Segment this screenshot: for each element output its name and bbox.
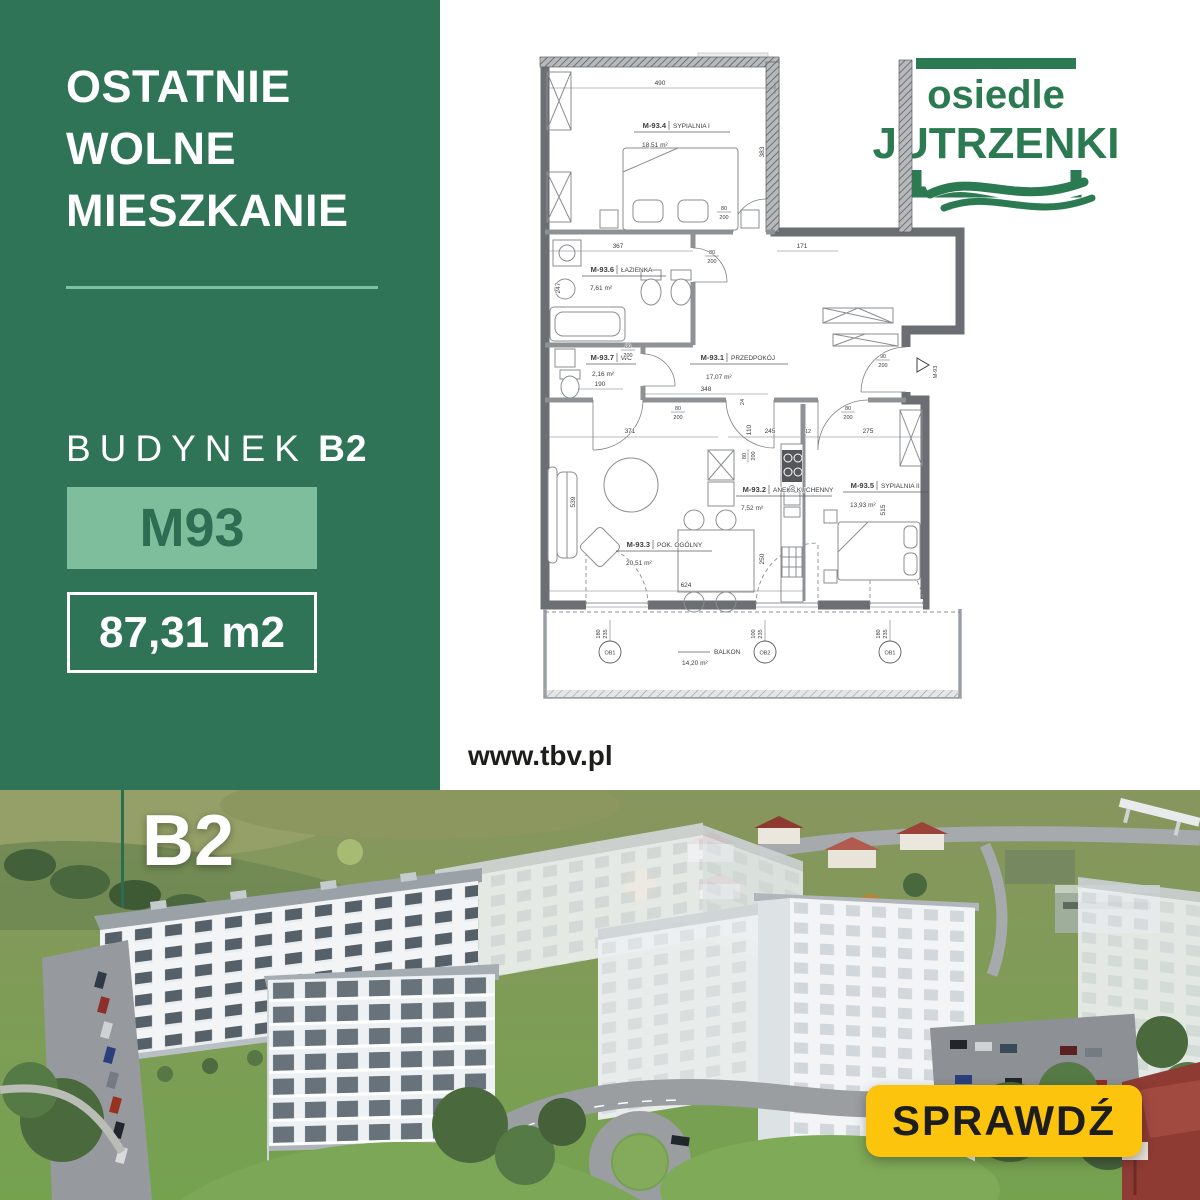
- svg-text:171: 171: [797, 243, 808, 250]
- svg-text:245: 245: [765, 428, 776, 435]
- unit-badge: M93: [67, 487, 317, 569]
- svg-text:100: 100: [751, 629, 757, 638]
- building-value: B2: [318, 428, 367, 469]
- svg-text:M-93.3: M-93.3: [627, 540, 650, 549]
- wardrobe-hatch: [547, 72, 571, 222]
- door-label-bed2: 80 200: [841, 406, 855, 421]
- svg-text:200: 200: [751, 451, 757, 460]
- b2-pointer-line: [121, 790, 124, 908]
- svg-text:7,52 m²: 7,52 m²: [741, 505, 764, 512]
- svg-text:80: 80: [742, 453, 748, 459]
- svg-text:13,93 m²: 13,93 m²: [850, 502, 876, 509]
- svg-text:190: 190: [595, 381, 606, 388]
- photo-building-label: B2: [142, 800, 234, 882]
- svg-text:PRZEDPOKÓJ: PRZEDPOKÓJ: [731, 353, 775, 362]
- svg-text:M-93.1: M-93.1: [701, 353, 724, 362]
- website-url: www.tbv.pl: [468, 740, 613, 772]
- door-label-kitchen: 80 200: [742, 449, 757, 463]
- svg-text:M-93.5: M-93.5: [851, 481, 874, 490]
- svg-text:180: 180: [876, 629, 882, 638]
- svg-text:17,07 m²: 17,07 m²: [706, 374, 732, 381]
- svg-text:80: 80: [845, 406, 851, 412]
- room-label-przedpokoj: M-93.1 PRZEDPOKÓJ 17,07 m²: [690, 353, 788, 381]
- area-badge: 87,31 m2: [67, 592, 317, 673]
- svg-text:80: 80: [709, 250, 715, 256]
- svg-text:235: 235: [603, 629, 609, 638]
- svg-text:OB2: OB2: [759, 651, 770, 657]
- room-label-sypialnia-1: M-93.4 SYPIALNIA I 18,51 m²: [634, 121, 730, 149]
- svg-text:110: 110: [746, 424, 753, 435]
- svg-text:ŁAZIENKA: ŁAZIENKA: [621, 267, 653, 274]
- svg-text:235: 235: [758, 629, 764, 638]
- cta-button[interactable]: SPRAWDŹ: [866, 1085, 1142, 1157]
- svg-text:M-93.6: M-93.6: [591, 265, 614, 274]
- svg-text:14,20 m²: 14,20 m²: [682, 660, 708, 667]
- left-green-panel: OSTATNIE WOLNE MIESZKANIE BUDYNEK B2 M93…: [0, 0, 440, 792]
- balcony-label: BALKON 14,20 m²: [678, 649, 741, 667]
- svg-text:200: 200: [623, 353, 632, 359]
- svg-text:250: 250: [759, 553, 766, 564]
- balcony: OB1 180 235 OB2 100 235 OB1 180 235 BALK…: [545, 609, 960, 697]
- svg-text:235: 235: [883, 629, 889, 638]
- svg-text:M-93.2: M-93.2: [743, 485, 766, 494]
- svg-text:348: 348: [701, 386, 712, 393]
- balcony-mark-2: OB2 100 235: [751, 620, 776, 663]
- headline-line-1: OSTATNIE: [66, 56, 349, 118]
- svg-text:247: 247: [555, 282, 562, 293]
- svg-text:2,16 m²: 2,16 m²: [592, 371, 615, 378]
- balcony-edge-hatch: [547, 690, 958, 697]
- balcony-mark-3: OB1 180 235: [876, 620, 901, 663]
- svg-text:OB1: OB1: [604, 651, 615, 657]
- svg-text:90: 90: [880, 354, 886, 360]
- svg-text:18,51 m²: 18,51 m²: [642, 142, 668, 149]
- svg-text:24: 24: [740, 399, 746, 405]
- svg-text:200: 200: [719, 215, 728, 221]
- svg-text:539: 539: [570, 496, 577, 507]
- svg-text:SYPIALNIA II: SYPIALNIA II: [881, 483, 920, 490]
- svg-text:OB1: OB1: [884, 651, 895, 657]
- door-label-living: 80 200: [671, 406, 685, 421]
- floor-plan: M-93: [538, 52, 978, 702]
- building-label: BUDYNEK: [66, 428, 308, 469]
- svg-text:515: 515: [880, 504, 887, 515]
- svg-text:80: 80: [675, 406, 681, 412]
- svg-text:624: 624: [681, 582, 692, 589]
- svg-text:20,51 m²: 20,51 m²: [626, 560, 652, 567]
- svg-text:BALKON: BALKON: [714, 649, 741, 656]
- furniture: [547, 72, 922, 612]
- svg-text:180: 180: [596, 629, 602, 638]
- svg-text:200: 200: [673, 415, 682, 421]
- ad-banner: OSTATNIE WOLNE MIESZKANIE BUDYNEK B2 M93…: [0, 0, 1200, 1200]
- headline-divider: [66, 286, 378, 289]
- entry-marker: M-93: [917, 358, 939, 378]
- headline-line-3: MIESZKANIE: [66, 180, 349, 242]
- svg-text:SYPIALNIA I: SYPIALNIA I: [673, 123, 710, 130]
- headline-line-2: WOLNE: [66, 118, 349, 180]
- unit-mark: M-93: [933, 366, 939, 379]
- hall-wardrobes: [823, 308, 898, 346]
- svg-text:200: 200: [878, 363, 887, 369]
- svg-text:POK. OGÓLNY: POK. OGÓLNY: [657, 540, 703, 549]
- svg-text:490: 490: [655, 80, 666, 87]
- svg-text:275: 275: [863, 428, 874, 435]
- svg-text:80: 80: [721, 206, 727, 212]
- svg-text:12: 12: [805, 429, 811, 435]
- svg-text:200: 200: [707, 259, 716, 265]
- bedroom2-wardrobe: [900, 410, 922, 466]
- svg-text:80: 80: [625, 344, 631, 350]
- balcony-mark-1: OB1 180 235: [596, 620, 621, 663]
- svg-text:200: 200: [843, 415, 852, 421]
- svg-text:M-93.4: M-93.4: [643, 121, 667, 130]
- svg-text:371: 371: [625, 428, 636, 435]
- svg-text:367: 367: [613, 243, 624, 250]
- svg-text:383: 383: [759, 146, 766, 157]
- building-row: BUDYNEK B2: [66, 428, 367, 470]
- svg-text:ANEKS KUCHENNY: ANEKS KUCHENNY: [773, 487, 834, 494]
- svg-text:7,61 m²: 7,61 m²: [590, 285, 613, 292]
- headline: OSTATNIE WOLNE MIESZKANIE: [66, 56, 349, 242]
- svg-text:M-93.7: M-93.7: [591, 353, 614, 362]
